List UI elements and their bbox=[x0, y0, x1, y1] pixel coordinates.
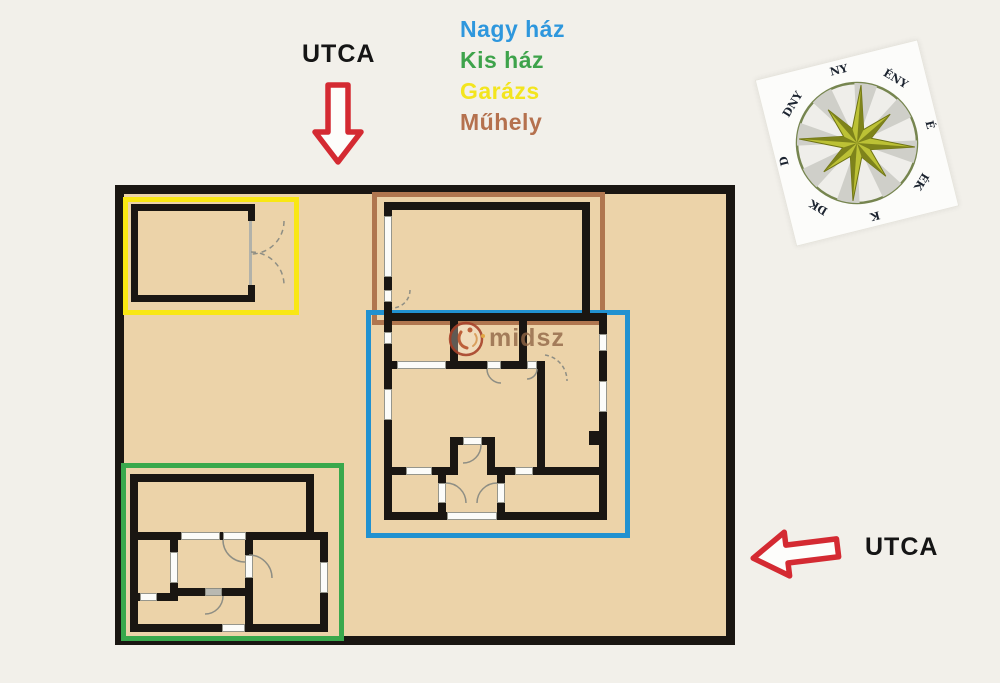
door-opening bbox=[223, 532, 246, 540]
wall bbox=[248, 285, 255, 302]
door-opening bbox=[140, 593, 157, 601]
wall bbox=[384, 202, 590, 210]
wall bbox=[248, 204, 255, 221]
compass-star-icon bbox=[756, 40, 958, 245]
wall bbox=[384, 202, 392, 216]
wall bbox=[131, 204, 138, 302]
garage-door-jamb bbox=[249, 221, 252, 285]
door-opening bbox=[515, 467, 533, 475]
window bbox=[599, 334, 607, 351]
street-label-top: UTCA bbox=[302, 40, 375, 69]
legend-item-small-house: Kis ház bbox=[460, 45, 565, 76]
wall bbox=[130, 474, 138, 632]
wall bbox=[245, 540, 253, 624]
legend: Nagy ház Kis ház Garázs Műhely bbox=[460, 14, 565, 138]
window bbox=[406, 467, 432, 475]
watermark-text: midsz bbox=[489, 324, 565, 353]
entry-door-opening bbox=[447, 512, 497, 520]
wall bbox=[589, 431, 599, 445]
door-opening bbox=[463, 437, 482, 445]
street-arrow-left-icon bbox=[744, 516, 846, 591]
wall bbox=[487, 437, 495, 468]
compass-rose: É ÉK K DK D DNY NY ÉNY bbox=[755, 39, 960, 247]
window bbox=[181, 532, 220, 540]
wall bbox=[450, 437, 458, 468]
site-plan-image: Nagy ház Kis ház Garázs Műhely UTCA UTCA bbox=[0, 0, 1000, 683]
street-label-right: UTCA bbox=[865, 533, 938, 562]
workshop-zone-outline bbox=[372, 192, 605, 325]
window bbox=[599, 381, 607, 412]
wall bbox=[537, 365, 545, 475]
wall bbox=[131, 295, 255, 302]
wall bbox=[306, 474, 314, 540]
window bbox=[320, 562, 328, 593]
legend-item-big-house: Nagy ház bbox=[460, 14, 565, 45]
window bbox=[384, 216, 392, 277]
wall bbox=[131, 204, 255, 211]
window bbox=[384, 389, 392, 420]
window bbox=[397, 361, 446, 369]
wall bbox=[384, 313, 607, 321]
street-arrow-down-icon bbox=[307, 82, 369, 167]
door-opening bbox=[527, 361, 537, 369]
door-leaf bbox=[205, 588, 222, 596]
door-opening bbox=[245, 555, 253, 578]
watermark-logo-icon bbox=[447, 320, 485, 358]
window bbox=[170, 552, 178, 583]
door-opening bbox=[438, 483, 446, 503]
legend-item-workshop: Műhely bbox=[460, 107, 565, 138]
wall bbox=[130, 474, 314, 482]
wall bbox=[138, 532, 306, 540]
window bbox=[384, 332, 392, 344]
wall bbox=[384, 277, 392, 290]
legend-item-garage: Garázs bbox=[460, 76, 565, 107]
window bbox=[384, 290, 392, 302]
door-opening bbox=[222, 624, 245, 632]
door-opening bbox=[487, 361, 501, 369]
door-opening bbox=[497, 483, 505, 503]
wall bbox=[582, 202, 590, 318]
